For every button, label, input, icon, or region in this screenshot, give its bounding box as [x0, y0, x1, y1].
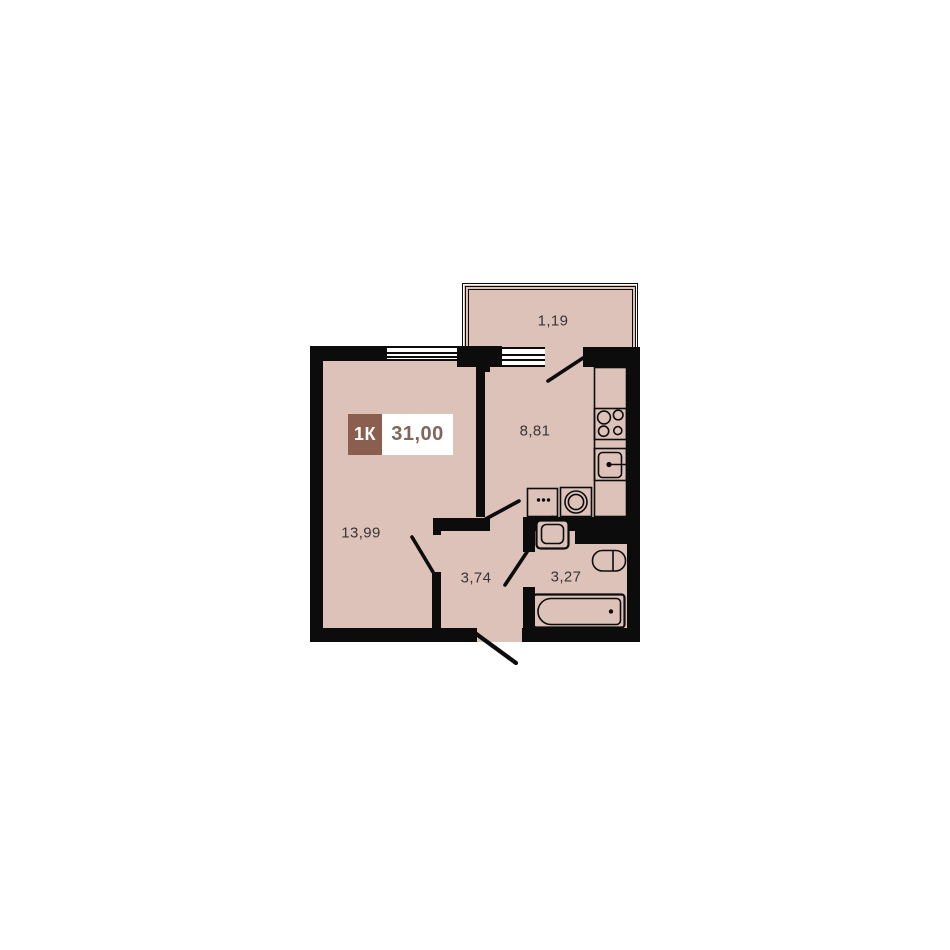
floor-plan: 1,19 8,81 13,99 3,74 3,27 1К 31,00	[0, 0, 950, 950]
balcony-door-icon	[548, 358, 583, 381]
kitchen-cabinet-icon	[528, 489, 558, 517]
living-room-area-label: 13,99	[341, 525, 381, 542]
balcony-area-label: 1,19	[538, 313, 569, 330]
entrance-door-icon	[475, 633, 516, 663]
stove-icon	[595, 409, 627, 440]
hallway-area-label: 3,74	[461, 570, 492, 587]
kitchen-counter-icon	[595, 368, 627, 517]
kitchen-sink-icon	[595, 449, 628, 481]
toilet-icon	[593, 551, 626, 572]
bathroom-door-icon	[505, 552, 527, 585]
kitchen-door-icon	[482, 501, 519, 521]
living-room-door-icon	[412, 537, 433, 572]
unit-badge: 1К 31,00	[348, 414, 453, 455]
fixtures-layer	[0, 0, 950, 950]
unit-type-badge: 1К	[348, 414, 382, 455]
bathroom-sink-icon	[537, 517, 569, 549]
bathroom-area-label: 3,27	[551, 569, 582, 586]
bathtub-icon	[534, 595, 625, 628]
unit-total-area: 31,00	[382, 414, 453, 455]
washing-machine-icon	[561, 488, 592, 517]
kitchen-area-label: 8,81	[520, 423, 551, 440]
